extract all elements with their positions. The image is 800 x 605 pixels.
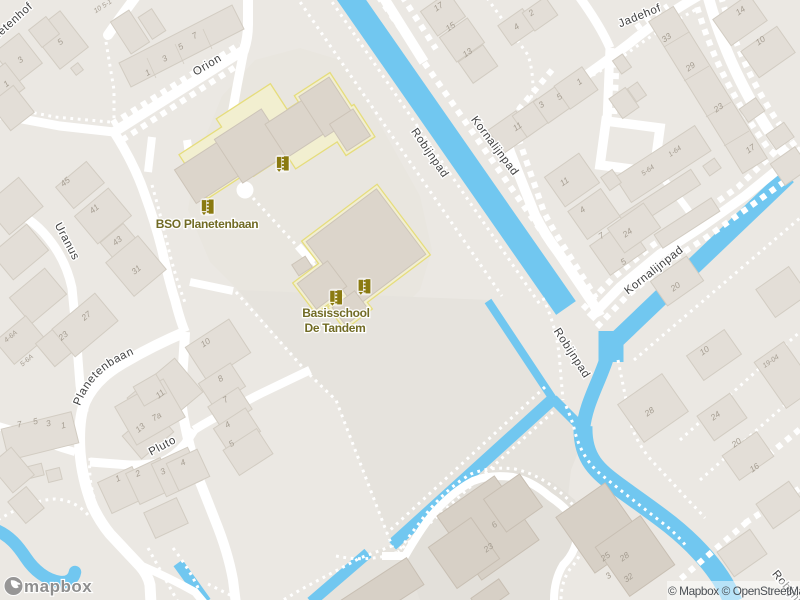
svg-text:BSO Planetenbaan: BSO Planetenbaan <box>156 217 259 231</box>
svg-text:Basisschool: Basisschool <box>302 306 369 320</box>
svg-text:mapbox: mapbox <box>24 577 92 596</box>
svg-text:© Mapbox © OpenStreetMap: © Mapbox © OpenStreetMap <box>668 584 800 598</box>
svg-text:De Tandem: De Tandem <box>304 321 365 335</box>
